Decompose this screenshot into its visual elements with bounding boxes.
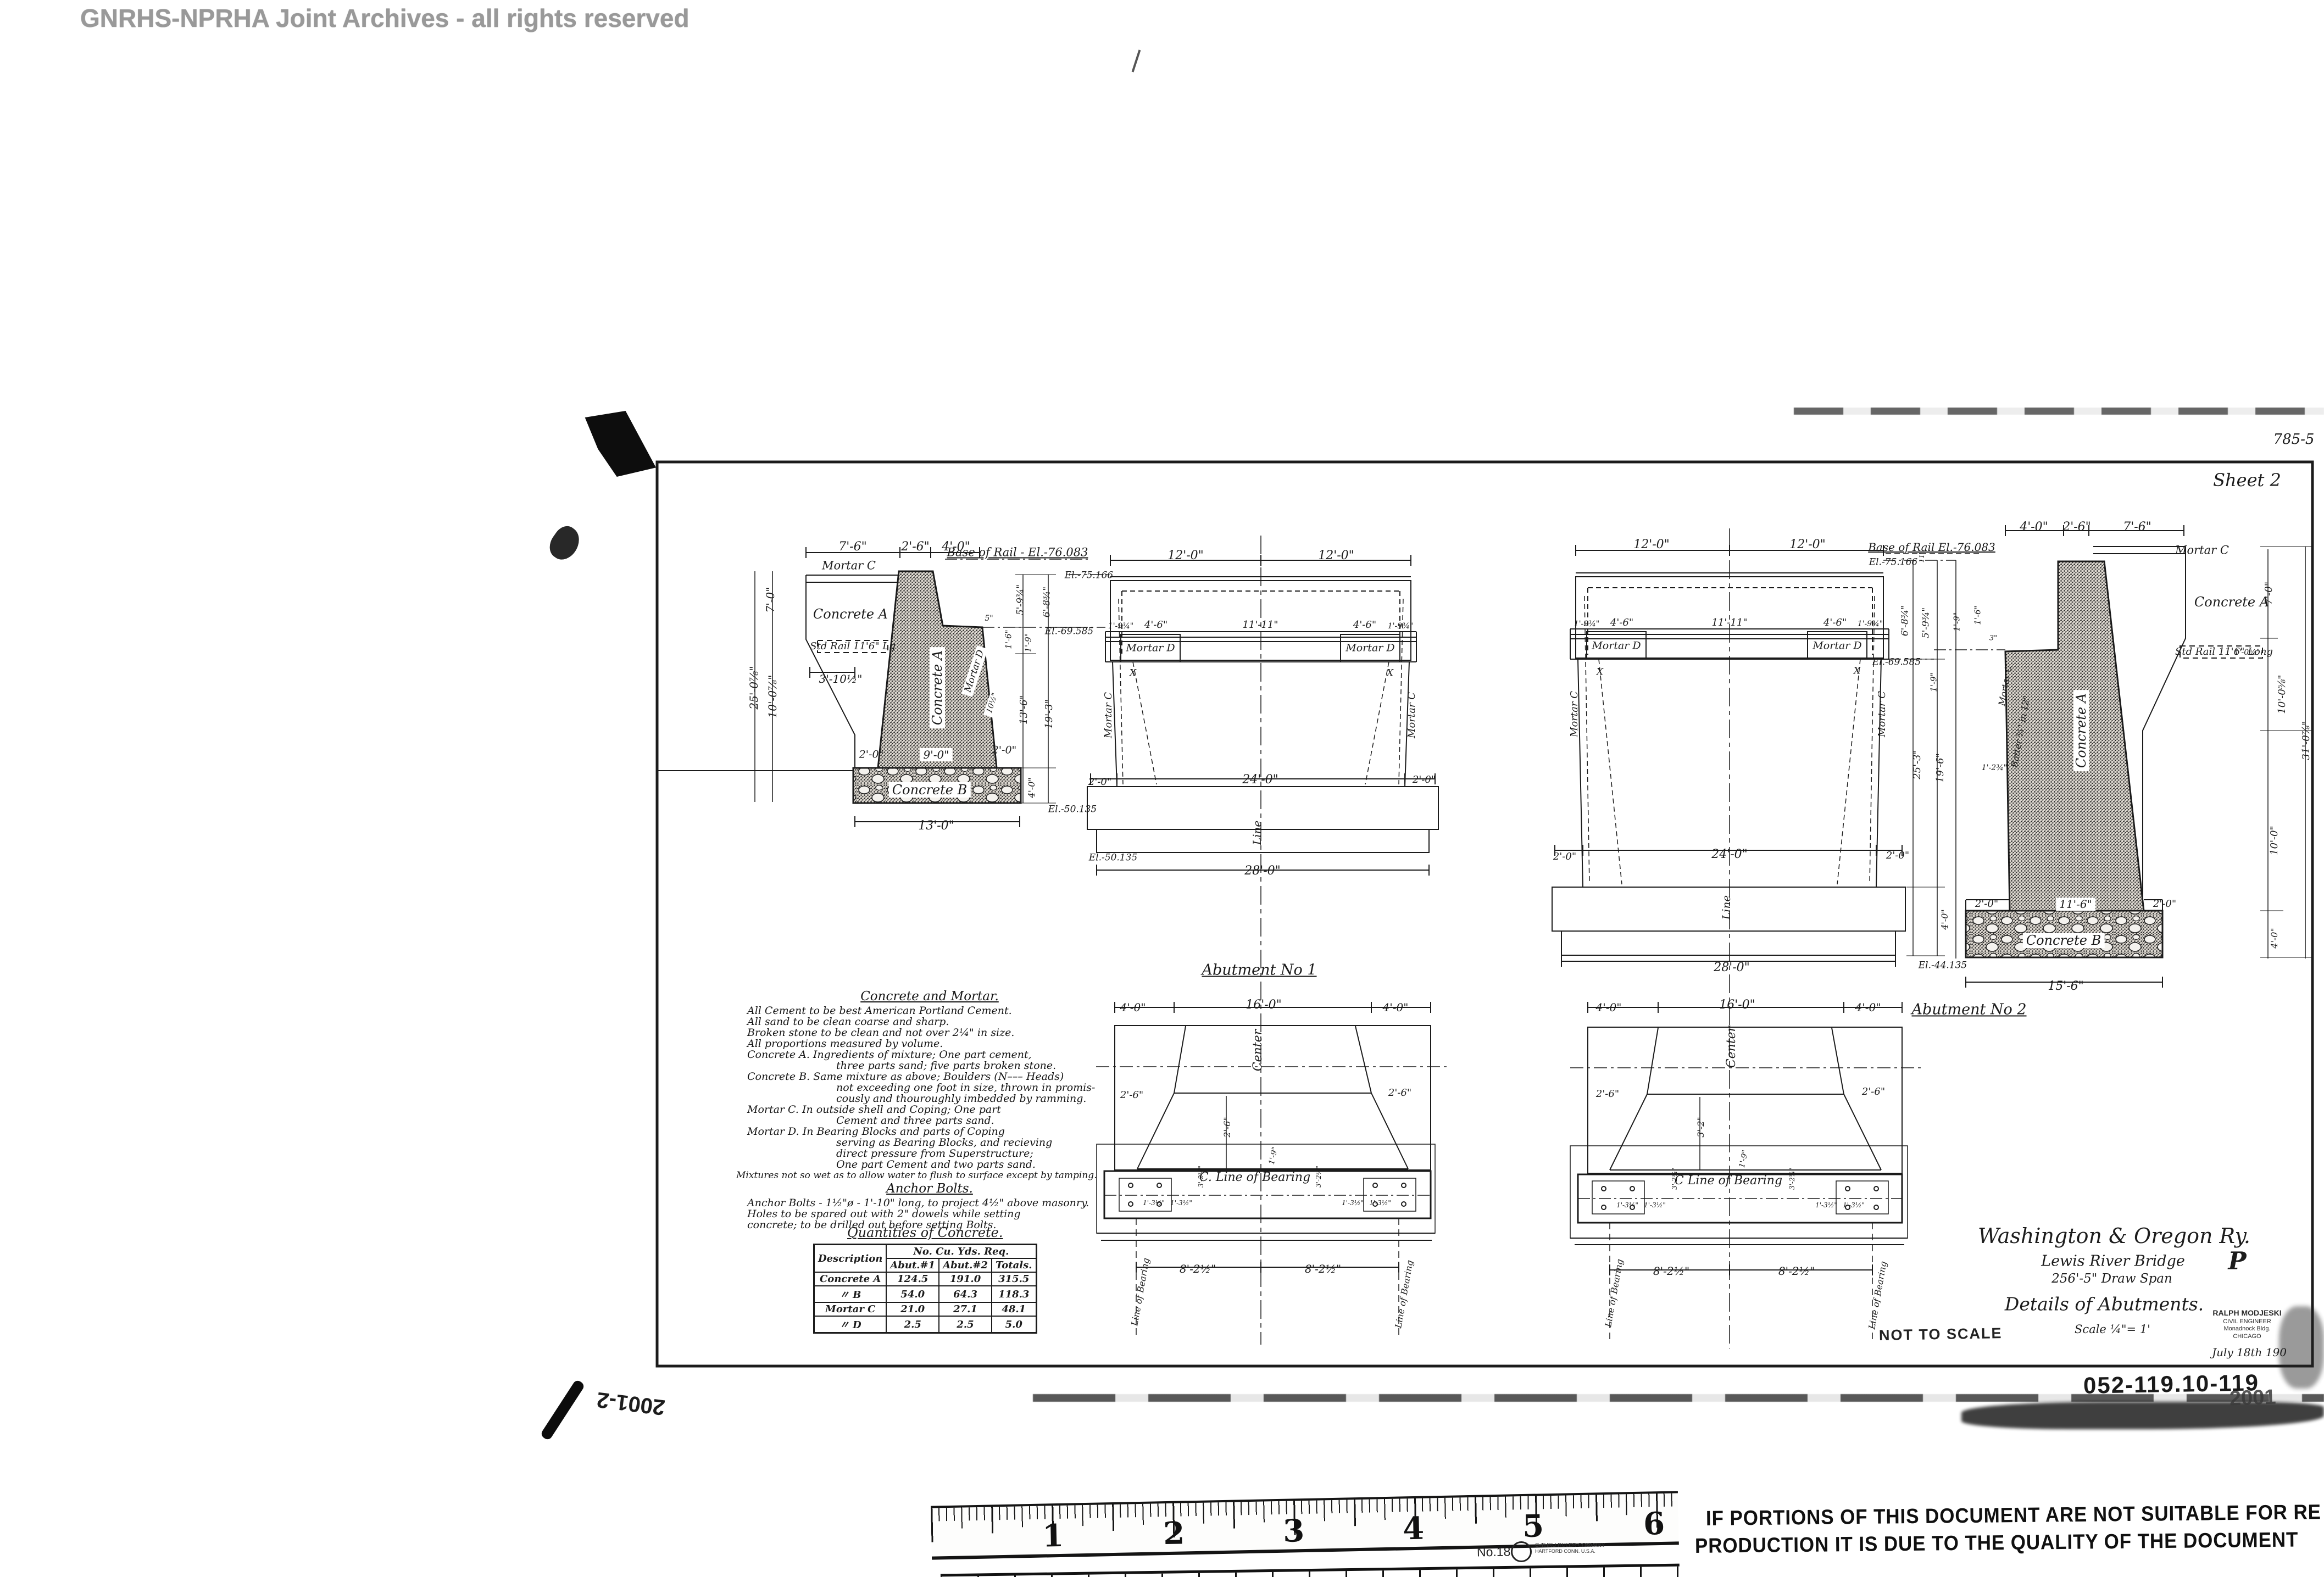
drawing-annotation: Concrete A — [930, 648, 944, 728]
drawing-annotation: 11'-11" — [1711, 618, 1747, 628]
ruler-maker-text: C-THRU RULER COMPANY HARTFORD CONN. U.S.… — [1535, 1542, 1605, 1554]
drawing-annotation: 13'-0" — [918, 820, 954, 832]
drawing-annotation: 4'-6" — [1823, 618, 1847, 628]
drawing-annotation: 1'-3½" — [1342, 1200, 1364, 1206]
scanned-drawing-page: GNRHS-NPRHA Joint Archives - all rights … — [0, 0, 2324, 1577]
drawing-annotation: 3'-10½" — [819, 673, 862, 684]
note-line: Mixtures not so wet as to allow water to… — [736, 1170, 1116, 1181]
drawing-annotation: 7'-6" — [2123, 521, 2151, 533]
drawing-annotation: 8'-2½" — [1653, 1266, 1689, 1277]
drawing-annotation: 4'-6" — [1353, 620, 1376, 630]
drawing-annotation: 2'-0" — [1553, 852, 1576, 862]
drawing-annotation: 1'-3½" — [1815, 1202, 1837, 1208]
drawing-annotation: C Line of Bearing — [1675, 1175, 1782, 1187]
quantities-table: Quantities of Concrete. Description No. … — [813, 1225, 1037, 1334]
drawing-annotation: 28'-0" — [1244, 865, 1281, 877]
drawing-annotation: 2'-6" — [1388, 1088, 1411, 1098]
title-railway: Washington & Oregon Ry. — [1978, 1224, 2250, 1248]
drawing-annotation: Mortar C — [2175, 545, 2229, 556]
drawing-annotation: El.-75.166 — [1869, 558, 1917, 567]
drawing-annotation: Abutment No 2 — [1911, 1002, 2026, 1017]
ruler-maker-line2: HARTFORD CONN. U.S.A. — [1535, 1548, 1605, 1554]
drawing-annotation: 5'-9¾" — [1922, 608, 1931, 638]
drawing-annotation: 1'-3½" — [1170, 1200, 1192, 1206]
drawing-annotation: 25'-0⅞" — [748, 666, 759, 709]
drawing-annotation: 31'-0⅞" — [2301, 721, 2311, 760]
drawing-annotation: 25'-3" — [1912, 750, 1922, 779]
drawing-annotation: 7'-0" — [2264, 582, 2274, 605]
drawing-annotation: 19'-3" — [1044, 699, 1054, 729]
drawing-annotation: 1'-9" — [1953, 612, 1961, 631]
stamp-bldg: Monadnock Bldg. — [2198, 1325, 2297, 1333]
table-row: 〃 B 54.0 64.3 118.3 — [814, 1286, 1037, 1302]
ruler-number: 1 — [1042, 1518, 1064, 1554]
drawing-annotation: Mortar D — [1592, 641, 1641, 651]
note-line: Concrete B. Same mixture as above; Bould… — [747, 1071, 1116, 1082]
drawing-annotation: El.-50.135 — [1089, 854, 1137, 863]
drawing-annotation: 4'-0" — [1855, 1002, 1881, 1013]
drawing-annotation: 5'-9¾" — [1016, 584, 1026, 615]
scan-streak-top-right — [1794, 408, 2324, 415]
drawing-annotation: Base of Rail El.-76.083 — [1868, 542, 1995, 553]
drawing-annotation: 4'-6" — [1610, 618, 1633, 628]
drawing-annotation: 1'-3½" — [1369, 1200, 1391, 1206]
note-line: cously and thouroughly imbedded by rammi… — [836, 1093, 1116, 1104]
note-line: Anchor Bolts - 1½"ø - 1'-10" long, to pr… — [747, 1197, 1116, 1208]
drawing-annotation: Line — [1721, 895, 1732, 920]
drawing-annotation: 1'-3½" — [1843, 1202, 1865, 1208]
note-line: Broken stone to be clean and not over 2¼… — [747, 1027, 1116, 1038]
drawing-annotation: 2'-0" — [2153, 899, 2176, 909]
note-line: Concrete and Mortar. — [743, 991, 1116, 1002]
drawing-annotation: El.-69.585 — [1045, 627, 1093, 637]
drawing-annotation: 2'-0" — [992, 745, 1017, 756]
drawing-annotation: 3'-2¾" — [1671, 1168, 1678, 1190]
drawing-annotation: 3" — [1989, 635, 1997, 642]
drawing-annotation: Concrete A — [2074, 690, 2088, 771]
drawing-annotation: 11" — [1919, 551, 1925, 563]
drawing-annotation: 16'-0" — [1246, 999, 1282, 1011]
drawing-annotation: 3'-2¾" — [1789, 1168, 1795, 1190]
handwritten-date: July 18th 190 — [2212, 1346, 2287, 1359]
drawing-annotation: Mortar D — [1813, 641, 1861, 651]
drawing-annotation: Std Rail 11'6" Lg — [810, 642, 896, 651]
note-line: direct pressure from Superstructure; — [836, 1148, 1116, 1159]
drawing-annotation: C. Line of Bearing — [1199, 1172, 1310, 1184]
ruler-maker-logo-icon — [1511, 1541, 1532, 1562]
drawing-annotation: Center — [1726, 1026, 1738, 1068]
drawing-annotation: 4'-0" — [1596, 1002, 1622, 1013]
ruler-number: 6 — [1643, 1506, 1665, 1542]
drawing-annotation: Mortar C — [1877, 691, 1887, 737]
drawing-annotation: X — [1854, 667, 1860, 676]
note-line: All Cement to be best American Portland … — [747, 1005, 1116, 1016]
drawing-annotation: Concrete A — [2194, 595, 2269, 609]
drawing-annotation: Concrete B — [889, 783, 970, 797]
drawing-annotation: 12'-0" — [1789, 539, 1826, 551]
drawing-annotation: 19'-6" — [1936, 753, 1945, 783]
watermark: GNRHS-NPRHA Joint Archives - all rights … — [80, 3, 690, 33]
drawing-annotation: 6'-8¾" — [1043, 587, 1052, 617]
drawing-annotation: 6'-8¾" — [1901, 605, 1910, 636]
drawing-annotation: Center — [1252, 1029, 1264, 1071]
note-line: Concrete A. Ingredients of mixture; One … — [747, 1049, 1116, 1060]
drawing-annotation: Mortar C — [1104, 692, 1114, 738]
drawing-annotation: 24'-0" — [1711, 849, 1748, 861]
stamp-name: RALPH MODJESKI — [2198, 1308, 2297, 1318]
drawing-annotation: 3'-2¾" — [1315, 1166, 1322, 1188]
note-line: Mortar D. In Bearing Blocks and parts of… — [747, 1126, 1116, 1137]
col-group: No. Cu. Yds. Req. — [886, 1245, 1036, 1259]
drawing-annotation: 28'-0" — [1714, 962, 1750, 974]
table-row: 〃 D 2.5 2.5 5.0 — [814, 1316, 1037, 1333]
drawing-annotation: Abutment No 1 — [1202, 963, 1316, 978]
drawing-annotation: 2'-0" — [1975, 899, 1998, 909]
drawing-annotation: Mortar D — [1346, 643, 1394, 654]
drawing-annotation: X — [1130, 669, 1136, 678]
drawing-annotation: Concrete A — [813, 608, 888, 621]
drawing-annotation: 24'-0" — [1242, 774, 1278, 786]
note-line: not exceeding one foot in size, thrown i… — [836, 1082, 1116, 1093]
drawing-annotation: 9'-0" — [921, 749, 952, 761]
note-line: All proportions measured by volume. — [747, 1038, 1116, 1049]
drawing-annotation: 12'-0" — [1633, 539, 1670, 551]
drawing-annotation: X — [1597, 668, 1603, 677]
drawing-annotation: 8'-2½" — [1778, 1266, 1815, 1277]
drawing-annotation: El.-50.135 — [1048, 805, 1097, 815]
drawing-annotation: Sheet 2 — [2213, 471, 2281, 489]
drawing-annotation: X — [1387, 669, 1393, 678]
drawing-annotation: 1'-9¾" — [1574, 620, 1599, 628]
drawing-annotation: 16'-0" — [1719, 999, 1755, 1011]
drawing-annotation: 4'-0" — [1120, 1002, 1146, 1013]
drawing-annotation: 8'-2½" — [1180, 1263, 1216, 1274]
ruler-maker-line1: C-THRU RULER COMPANY — [1535, 1542, 1605, 1548]
drawing-annotation: 2'-0" — [1088, 777, 1111, 787]
drawing-annotation: Mortar C — [822, 560, 876, 572]
drawing-annotation: 1'-0⅝" — [2234, 649, 2260, 656]
note-line: Cement and three parts sand. — [836, 1115, 1116, 1126]
stamp-role: CIVIL ENGINEER — [2198, 1318, 2297, 1326]
drawing-annotation: Mortar C — [1407, 692, 1417, 738]
stamp-city: CHICAGO — [2198, 1333, 2297, 1341]
drawing-annotation: 2'-6" — [1120, 1090, 1143, 1100]
drawing-annotation: 2'-6" — [901, 541, 930, 553]
ruler-number: 3 — [1283, 1513, 1305, 1550]
note-line: serving as Bearing Blocks, and recieving — [836, 1137, 1116, 1148]
drawing-annotation: 785-5 — [2273, 432, 2315, 447]
drawing-annotation: 2'-6" — [1862, 1087, 1885, 1097]
drawing-annotation: Mortar D — [1126, 643, 1175, 654]
ruler-number: 4 — [1403, 1511, 1425, 1547]
notes-block: Concrete and Mortar.All Cement to be bes… — [743, 989, 1116, 1230]
drawing-annotation: 1'-3½" — [1616, 1202, 1638, 1208]
title-span: 256'-5" Draw Span — [2051, 1272, 2172, 1286]
note-line: three parts sand; five parts broken ston… — [836, 1060, 1116, 1071]
drawing-annotation: 1'-6" — [1974, 605, 1982, 625]
drawing-annotation: 7'-0" — [765, 587, 776, 613]
drawing-annotation: 10'-0" — [2270, 826, 2279, 855]
drawing-annotation: El.-44.135 — [1919, 961, 1967, 971]
drawing-annotation: 3'-2" — [1697, 1117, 1705, 1138]
drawing-annotation: 1'-9" — [1025, 633, 1033, 652]
drawing-annotation: 1'-9¾" — [1108, 622, 1133, 630]
drawing-annotation: 1'-3½" — [1644, 1202, 1666, 1208]
col-description: Description — [814, 1245, 887, 1273]
drawing-annotation: 12'-0" — [1167, 550, 1204, 562]
drawing-annotation: 2'-0" — [859, 750, 884, 760]
note-line: All sand to be clean coarse and sharp. — [747, 1016, 1116, 1027]
drawing-annotation: 4'-6" — [1144, 620, 1167, 630]
drawing-annotation: 7'-6" — [838, 541, 867, 553]
drawing-annotation: 2'-6" — [1223, 1117, 1232, 1138]
abutment2-plan-view — [1570, 1002, 1923, 1343]
table-row: Concrete A 124.5 191.0 315.5 — [814, 1272, 1037, 1286]
drawing-annotation: 2'-0" — [1413, 775, 1436, 785]
scan-number: 2001 — [2229, 1386, 2276, 1411]
drawing-annotation: 11'-11" — [1242, 620, 1278, 630]
title-bridge: Lewis River Bridge — [2041, 1253, 2185, 1270]
drawing-annotation: Concrete B — [2023, 933, 2104, 948]
drawing-annotation: 1'-9¾" — [1388, 622, 1413, 630]
drawing-annotation: 12'-0" — [1318, 550, 1354, 562]
drawing-annotation: 5" — [985, 615, 993, 622]
drawing-annotation: 10'-0⅞" — [767, 675, 778, 718]
drawing-annotation: 15'-6" — [2048, 980, 2084, 993]
drawing-annotation: Mortar C — [1570, 691, 1580, 737]
drawing-annotation: 4'-0" — [1383, 1002, 1409, 1013]
note-line: Mortar C. In outside shell and Coping; O… — [747, 1104, 1116, 1115]
drawing-annotation: 10'-0⅝" — [2277, 675, 2287, 714]
ruler-number: 5 — [1522, 1508, 1544, 1545]
engineer-stamp: RALPH MODJESKI CIVIL ENGINEER Monadnock … — [2198, 1308, 2297, 1341]
col-abut1: Abut.#1 — [886, 1258, 939, 1272]
drawing-annotation: 2'-6" — [1596, 1089, 1619, 1099]
drawing-annotation: 4'-0" — [1941, 909, 1949, 930]
drawing-annotation: 1'-9¾" — [1858, 620, 1883, 628]
drawing-annotation: El.-75.166 — [1065, 571, 1113, 581]
drawing-annotation: 1'-9" — [1930, 672, 1938, 692]
drawing-annotation: 13'-6" — [1019, 695, 1029, 725]
note-line: One part Cement and two parts sand. — [836, 1159, 1116, 1170]
drawing-annotation: 1'-3½" — [1143, 1200, 1165, 1206]
note-line: Anchor Bolts. — [743, 1183, 1116, 1194]
drawing-annotation: 4'-0" — [2270, 928, 2279, 949]
drawing-annotation: 3'-2¾" — [1198, 1166, 1204, 1188]
col-totals: Totals. — [992, 1258, 1036, 1272]
drawing-annotation: 4'-0" — [1027, 777, 1036, 798]
drawing-annotation: 8'-2½" — [1305, 1263, 1341, 1274]
note-line: Holes to be spared out with 2" dowels wh… — [747, 1208, 1116, 1219]
title-sheet-title: Details of Abutments. — [2005, 1294, 2204, 1315]
not-to-scale-stamp: NOT TO SCALE — [1879, 1325, 2003, 1344]
col-abut2: Abut.#2 — [939, 1258, 992, 1272]
drawing-annotation: El.-69.585 — [1872, 658, 1921, 667]
drawing-annotation: 1'-2¾" — [1982, 764, 2007, 772]
ruler-number: 2 — [1163, 1515, 1185, 1552]
pencil-mark-p: P — [2228, 1247, 2246, 1275]
drawing-annotation: 1'-6" — [1005, 629, 1013, 649]
drawing-annotation: Line — [1252, 821, 1263, 845]
quantities-title: Quantities of Concrete. — [813, 1225, 1037, 1240]
table-row: Mortar C 21.0 27.1 48.1 — [814, 1302, 1037, 1316]
drawing-annotation: Base of Rail - El.-76.083 — [947, 547, 1088, 559]
title-scale: Scale ¼"= 1' — [2075, 1323, 2150, 1336]
drawing-annotation: 2'-0" — [1886, 851, 1909, 861]
drawing-annotation: 2'-6" — [2062, 521, 2091, 533]
drawing-annotation: 11'-6" — [2056, 898, 2095, 910]
drawing-annotation: 4'-0" — [2020, 521, 2048, 533]
